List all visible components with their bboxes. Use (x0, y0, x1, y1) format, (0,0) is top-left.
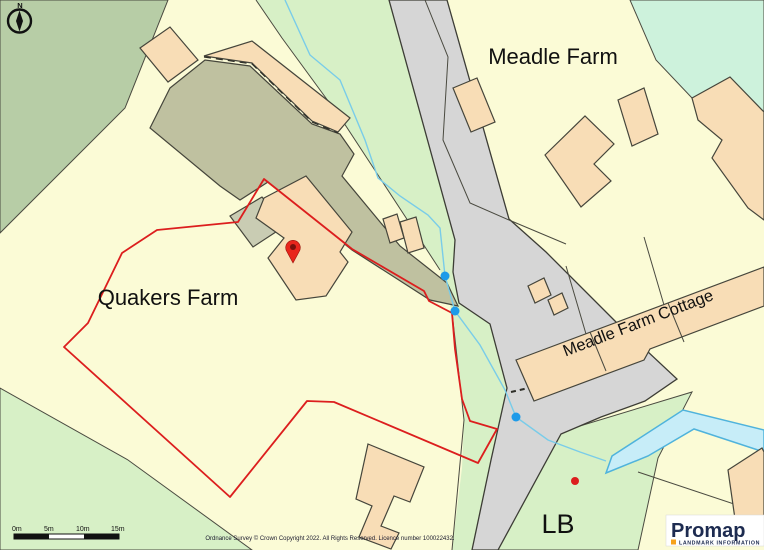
compass-north-label: N (17, 1, 22, 10)
map-canvas[interactable]: Meadle Farm Quakers Farm Meadle Farm Cot… (0, 0, 764, 550)
scale-tick-15: 15m (111, 526, 125, 533)
blue-node-dot-3 (512, 413, 521, 422)
logo-orange-square-icon (671, 540, 676, 545)
label-lb: LB (541, 509, 574, 539)
label-meadle-farm: Meadle Farm (488, 44, 618, 69)
scale-bar-segment-2 (84, 534, 119, 539)
logo-brand: Promap (671, 520, 745, 542)
promap-logo: Promap LANDMARK INFORMATION (666, 515, 764, 547)
attribution-text: Ordnance Survey © Crown Copyright 2022. … (205, 535, 455, 542)
blue-node-dot-1 (441, 272, 450, 281)
label-quakers-farm: Quakers Farm (98, 285, 239, 310)
scale-tick-5: 5m (44, 526, 54, 533)
red-point-marker (571, 477, 579, 485)
scale-tick-10: 10m (76, 526, 90, 533)
logo-tagline: LANDMARK INFORMATION (679, 541, 760, 547)
blue-node-dot-2 (451, 307, 460, 316)
scale-tick-0: 0m (12, 526, 22, 533)
scale-bar-segment-1 (14, 534, 49, 539)
pin-hole (290, 244, 296, 250)
map-viewport: Meadle Farm Quakers Farm Meadle Farm Cot… (0, 0, 764, 550)
